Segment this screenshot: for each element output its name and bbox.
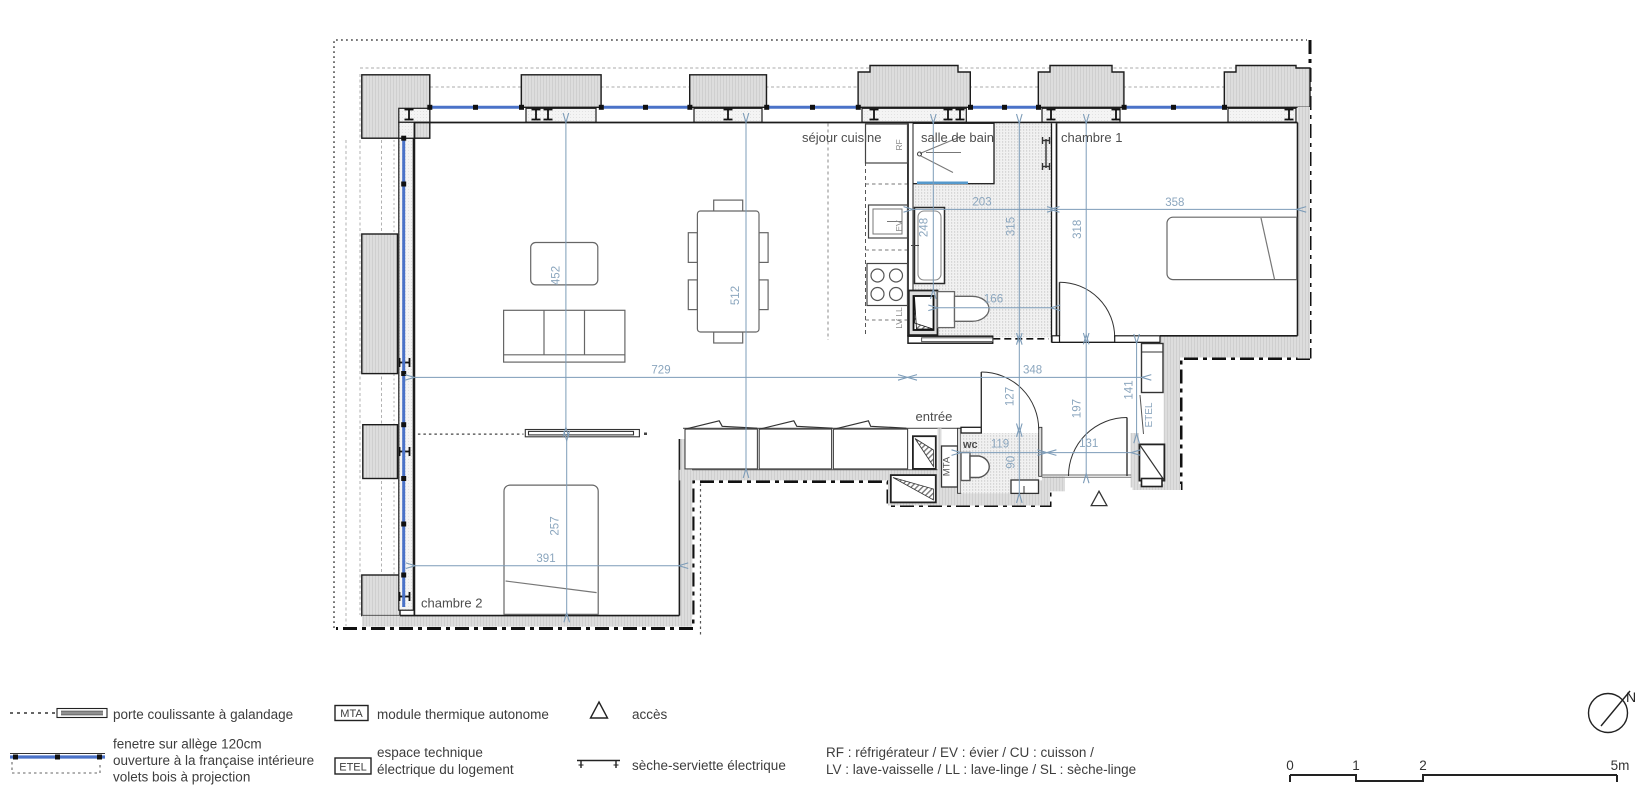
svg-text:N: N [1626,689,1636,705]
svg-text:1: 1 [1352,758,1360,773]
svg-text:fenetre sur allège 120cm: fenetre sur allège 120cm [113,737,262,752]
svg-text:257: 257 [550,516,562,535]
svg-text:ETEL: ETEL [1144,402,1155,427]
svg-text:espace technique: espace technique [377,745,483,760]
svg-text:391: 391 [536,553,555,565]
svg-text:entrée: entrée [916,409,953,424]
svg-text:volets bois à projection: volets bois à projection [113,770,250,785]
svg-text:salle de bain: salle de bain [921,130,994,145]
svg-text:LV : lave-vaisselle / LL : lav: LV : lave-vaisselle / LL : lave-linge / … [826,762,1136,777]
svg-text:séjour cuisine: séjour cuisine [802,130,882,145]
svg-text:sèche-serviette électrique: sèche-serviette électrique [632,758,786,773]
svg-text:127: 127 [1005,387,1017,406]
svg-text:MTA: MTA [340,708,363,720]
svg-text:315: 315 [1006,217,1018,236]
svg-text:348: 348 [1023,365,1042,377]
svg-text:porte coulissante à galandage: porte coulissante à galandage [113,707,293,722]
svg-text:318: 318 [1072,220,1084,239]
svg-text:90: 90 [1006,456,1018,469]
svg-text:ETEL: ETEL [339,762,367,774]
svg-text:accès: accès [632,707,668,722]
svg-text:512: 512 [730,286,742,305]
svg-text:MTA: MTA [942,456,953,476]
svg-text:248: 248 [919,218,931,237]
svg-text:203: 203 [972,197,991,209]
svg-text:chambre 1: chambre 1 [1061,130,1122,145]
svg-text:0: 0 [1286,758,1294,773]
svg-text:électrique du logement: électrique du logement [377,762,514,777]
svg-text:chambre 2: chambre 2 [421,596,482,611]
svg-text:EV: EV [894,220,904,232]
svg-text:131: 131 [1079,438,1098,450]
svg-text:RF: RF [894,139,904,150]
svg-text:wc: wc [962,439,978,451]
svg-text:module thermique autonome: module thermique autonome [377,707,549,722]
svg-text:ouverture à la française intér: ouverture à la française intérieure [113,753,314,768]
svg-text:166: 166 [984,294,1003,306]
svg-text:LV LL: LV LL [894,307,904,329]
svg-text:452: 452 [551,266,563,285]
svg-text:2: 2 [1419,758,1427,773]
svg-text:141: 141 [1123,380,1135,399]
svg-text:358: 358 [1165,197,1184,209]
svg-text:RF : réfrigérateur / EV : évie: RF : réfrigérateur / EV : évier / CU : c… [826,745,1094,760]
svg-text:197: 197 [1072,399,1084,418]
svg-text:729: 729 [651,365,670,377]
svg-text:119: 119 [991,438,1009,450]
svg-text:5m: 5m [1611,758,1630,773]
